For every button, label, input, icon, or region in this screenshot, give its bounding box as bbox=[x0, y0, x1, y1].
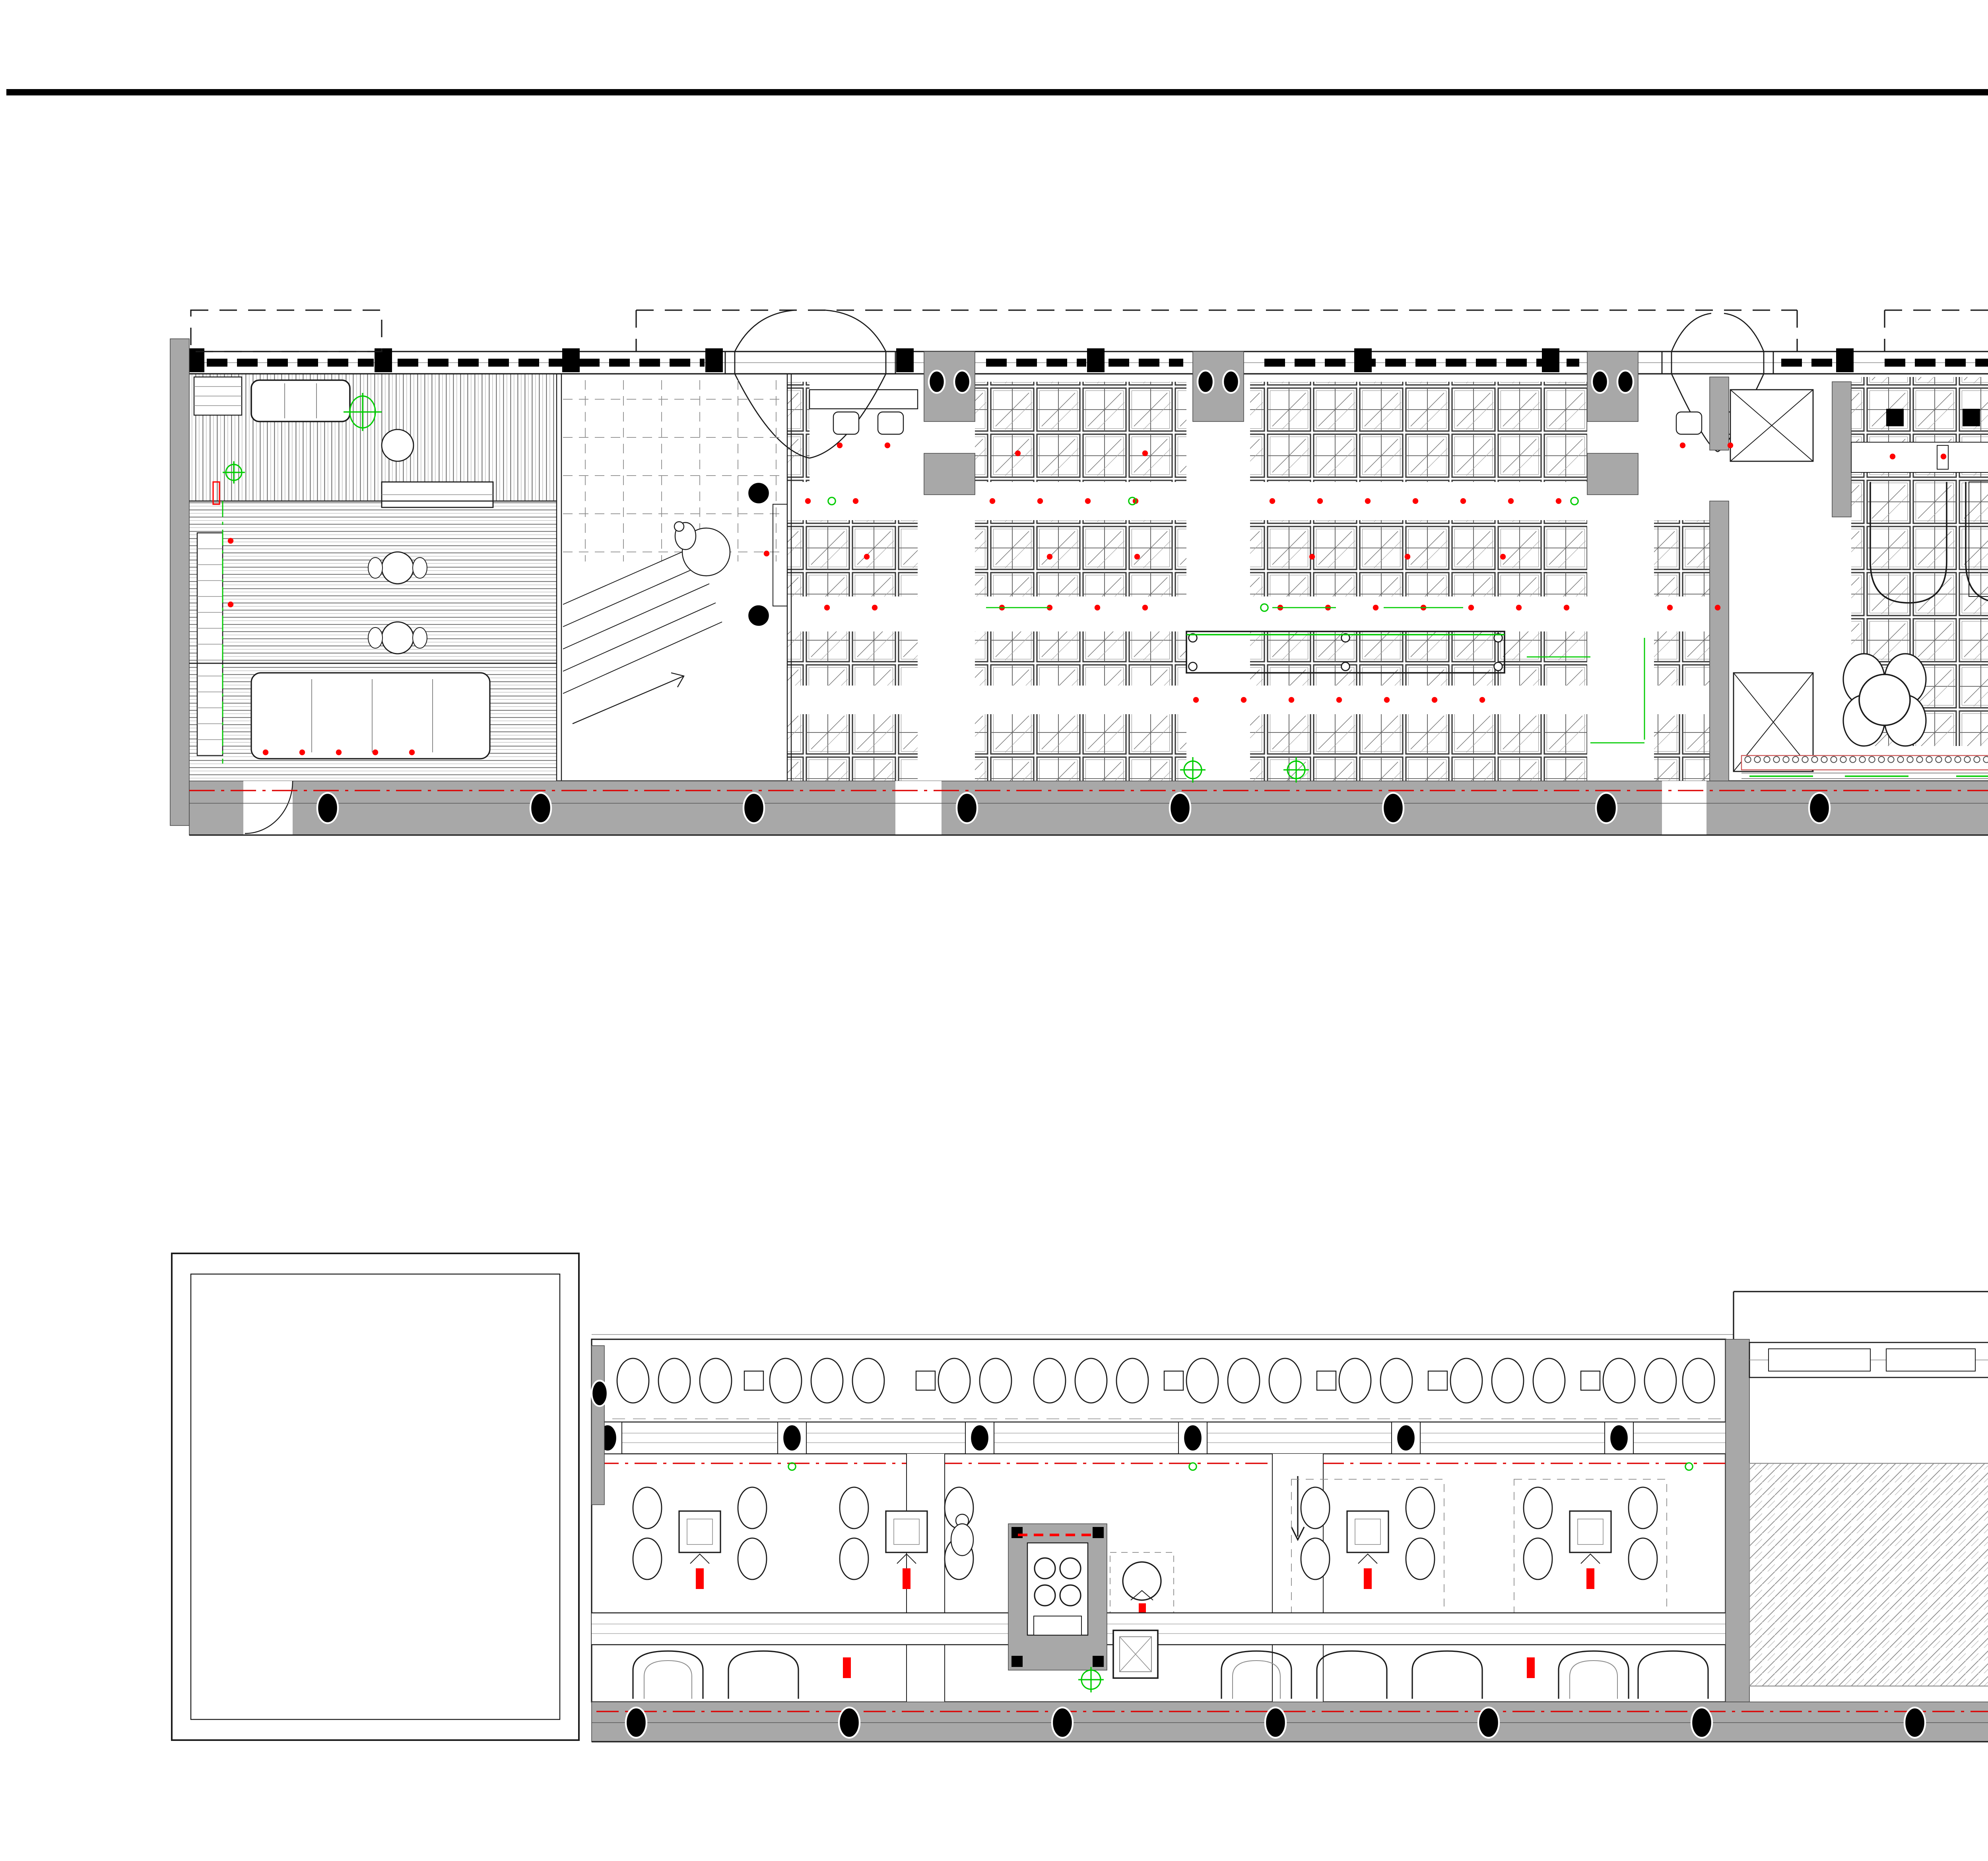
service-band bbox=[1851, 442, 1988, 472]
bottom-wall-band bbox=[592, 1702, 1988, 1742]
bottom-wall-band bbox=[189, 781, 1988, 835]
lower-booths bbox=[633, 1651, 1708, 1699]
roof-hatch-area bbox=[1749, 1463, 1988, 1686]
oval-chair-row bbox=[617, 1358, 1714, 1403]
drawing-sheet: 首层平面图1:50 二层平面图1:50 bbox=[0, 0, 1988, 1861]
seating-groups bbox=[633, 1479, 1667, 1622]
kitchen-station bbox=[1008, 1524, 1158, 1692]
sheet-top-border bbox=[6, 89, 1988, 95]
upper-walkway bbox=[592, 1422, 1726, 1470]
bead-curtain-band bbox=[1741, 756, 1988, 770]
second-floor-plan-drawing bbox=[159, 1241, 1988, 1781]
equipment-block bbox=[1963, 409, 1980, 426]
left-exterior-wall bbox=[170, 339, 189, 826]
lower-roof-outline bbox=[172, 1253, 579, 1740]
first-floor-plan-drawing bbox=[159, 294, 1988, 883]
round-column bbox=[747, 482, 770, 504]
right-wing bbox=[1726, 1292, 1988, 1702]
lower-walkway bbox=[592, 1613, 1726, 1645]
left-wall-stub bbox=[592, 1346, 604, 1505]
round-column bbox=[747, 604, 770, 627]
equipment-block bbox=[1886, 409, 1904, 426]
